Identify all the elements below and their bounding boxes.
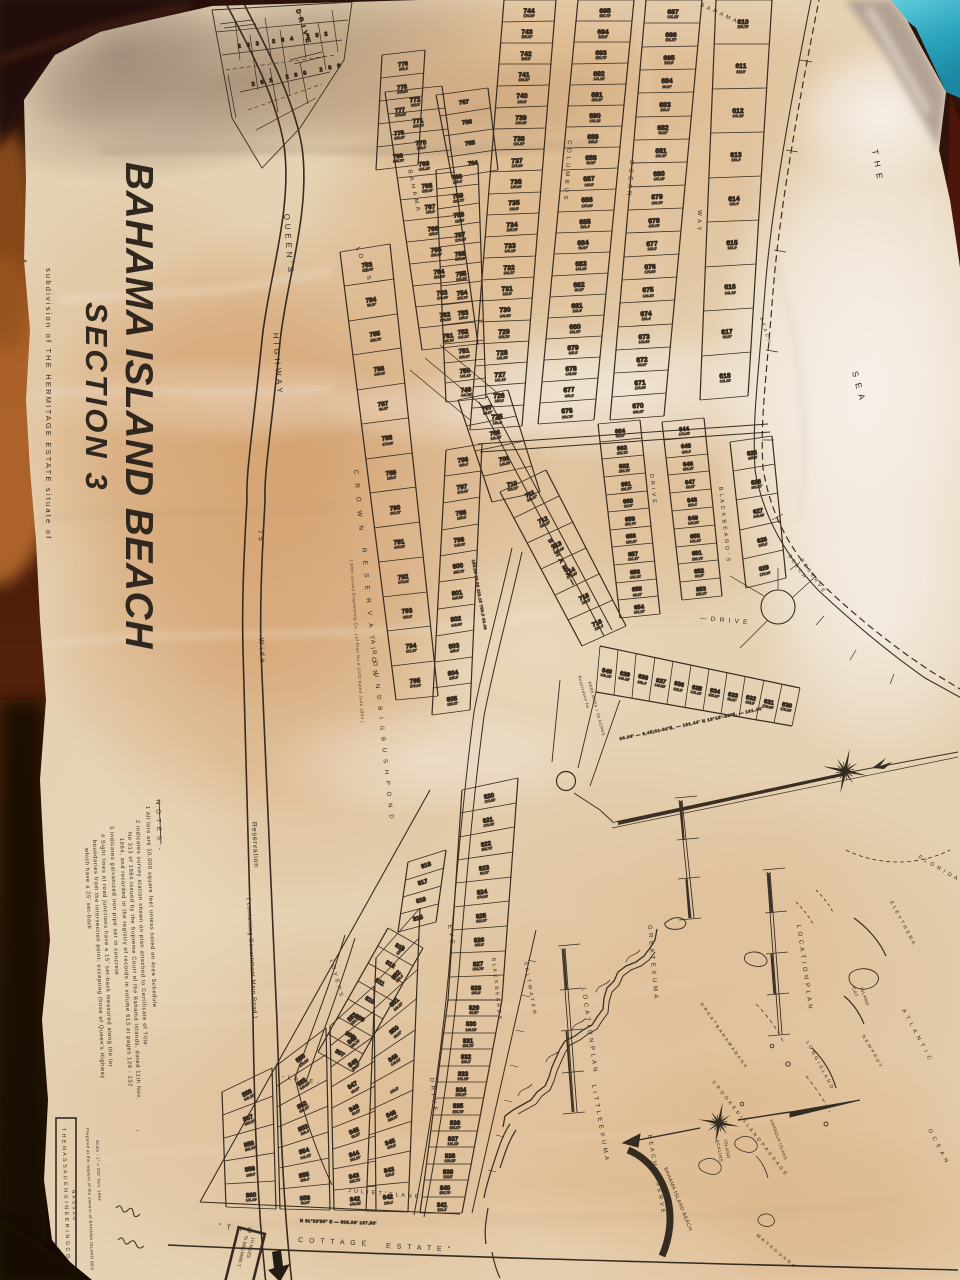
svg-text:95.07': 95.07' bbox=[663, 85, 673, 89]
svg-text:158.70': 158.70' bbox=[473, 967, 485, 972]
svg-text:141.18': 141.18' bbox=[733, 114, 744, 118]
svg-text:155.67': 155.67' bbox=[592, 98, 603, 102]
svg-text:122.5': 122.5' bbox=[598, 35, 607, 39]
svg-text:170.06': 170.06' bbox=[645, 270, 657, 275]
svg-text:7 5 ': 7 5 ' bbox=[256, 530, 264, 546]
svg-text:149.33': 149.33' bbox=[444, 1159, 455, 1163]
svg-text:149.33': 149.33' bbox=[465, 1028, 476, 1032]
svg-text:158.70': 158.70' bbox=[452, 1110, 463, 1114]
svg-text:133.4': 133.4' bbox=[461, 1060, 470, 1064]
svg-text:141.18': 141.18' bbox=[720, 379, 732, 384]
svg-text:141.18': 141.18' bbox=[497, 356, 509, 361]
svg-text:141.18': 141.18' bbox=[495, 378, 507, 383]
svg-text:133.4': 133.4' bbox=[642, 317, 652, 321]
svg-text:101.57': 101.57' bbox=[504, 271, 516, 276]
svg-text:830: 830 bbox=[466, 1021, 477, 1028]
svg-text:155.67': 155.67' bbox=[455, 1093, 466, 1097]
svg-text:101.57': 101.57' bbox=[656, 154, 667, 158]
svg-text:155.67': 155.67' bbox=[449, 1126, 460, 1130]
svg-text:158.70': 158.70' bbox=[595, 56, 606, 60]
svg-text:141.18': 141.18' bbox=[505, 249, 517, 253]
svg-text:170.06': 170.06' bbox=[523, 14, 534, 18]
svg-text:141.18': 141.18' bbox=[594, 77, 605, 81]
svg-text:122.5': 122.5' bbox=[518, 100, 528, 104]
svg-text:149.33': 149.33' bbox=[516, 121, 527, 125]
svg-text:165.8': 165.8' bbox=[569, 351, 579, 355]
svg-text:165.8': 165.8' bbox=[521, 57, 530, 61]
svg-text:158.70': 158.70' bbox=[562, 415, 574, 420]
svg-text:149.33': 149.33' bbox=[511, 185, 523, 189]
svg-text:122.5': 122.5' bbox=[648, 247, 658, 251]
svg-text:122.5': 122.5' bbox=[443, 1175, 452, 1179]
svg-text:165.8': 165.8' bbox=[495, 399, 505, 404]
svg-text:SECTION 3: SECTION 3 bbox=[79, 302, 114, 493]
svg-text:141.18': 141.18' bbox=[447, 1142, 458, 1146]
svg-text:95.07': 95.07' bbox=[301, 1201, 311, 1206]
svg-text:122.5': 122.5' bbox=[664, 61, 673, 65]
svg-text:133.4': 133.4' bbox=[731, 158, 741, 162]
svg-text:158.70': 158.70' bbox=[652, 201, 664, 205]
svg-text:133.4': 133.4' bbox=[661, 108, 671, 112]
svg-text:133.4': 133.4' bbox=[730, 202, 740, 206]
svg-text:141.18': 141.18' bbox=[576, 267, 588, 271]
svg-text:95.07': 95.07' bbox=[586, 161, 596, 165]
svg-text:170.06': 170.06' bbox=[582, 204, 594, 208]
svg-text:95.07': 95.07' bbox=[658, 131, 668, 135]
svg-text:95.07': 95.07' bbox=[638, 363, 648, 368]
svg-text:101.57': 101.57' bbox=[514, 142, 525, 146]
svg-text:95.07': 95.07' bbox=[575, 288, 585, 292]
svg-text:158.70': 158.70' bbox=[599, 14, 610, 18]
svg-text:122.5': 122.5' bbox=[510, 207, 520, 211]
svg-text:l: l bbox=[135, 1130, 140, 1131]
svg-text:165.8': 165.8' bbox=[471, 991, 481, 995]
svg-text:149.33': 149.33' bbox=[566, 372, 578, 377]
svg-text:165.8': 165.8' bbox=[588, 140, 598, 144]
svg-text:141.18': 141.18' bbox=[667, 15, 678, 19]
svg-text:141.18': 141.18' bbox=[725, 291, 737, 296]
svg-text:W A Y: W A Y bbox=[695, 210, 702, 231]
svg-text:101.57': 101.57' bbox=[665, 38, 676, 42]
svg-text:835: 835 bbox=[453, 1103, 464, 1110]
svg-text:subdivision of THE HERMITAG: subdivision of THE HERMITAGE ESTATE situ… bbox=[44, 268, 53, 540]
svg-text:155.67': 155.67' bbox=[519, 78, 530, 82]
svg-text:122.5': 122.5' bbox=[503, 292, 513, 296]
svg-text:158.70': 158.70' bbox=[737, 25, 748, 29]
svg-text:122.5': 122.5' bbox=[736, 70, 745, 74]
svg-text:158.70': 158.70' bbox=[439, 1191, 450, 1195]
svg-text:95.07': 95.07' bbox=[579, 246, 589, 250]
svg-text:141.18': 141.18' bbox=[590, 119, 601, 123]
svg-text:BAHAMA ISLAND BEACH: BAHAMA ISLAND BEACH bbox=[117, 162, 160, 649]
svg-text:122.5': 122.5' bbox=[585, 183, 595, 187]
svg-text:165.8': 165.8' bbox=[475, 943, 485, 948]
svg-text:149.33': 149.33' bbox=[643, 294, 655, 299]
svg-text:158.70': 158.70' bbox=[649, 224, 661, 228]
svg-text:133.4': 133.4' bbox=[728, 246, 738, 250]
svg-text:133.4': 133.4' bbox=[682, 450, 692, 455]
svg-text:165.8': 165.8' bbox=[565, 394, 575, 399]
svg-text:158.70': 158.70' bbox=[507, 228, 519, 232]
svg-text:133.4': 133.4' bbox=[437, 1208, 446, 1212]
svg-text:141.18': 141.18' bbox=[457, 1077, 468, 1081]
svg-text:155.67': 155.67' bbox=[521, 35, 532, 39]
svg-text:149.33': 149.33' bbox=[500, 314, 512, 319]
svg-text:95.07': 95.07' bbox=[469, 1011, 478, 1015]
svg-text:95.07': 95.07' bbox=[723, 335, 733, 340]
svg-text:155.67': 155.67' bbox=[633, 410, 645, 415]
svg-text:101.57': 101.57' bbox=[570, 330, 582, 335]
svg-text:170.06': 170.06' bbox=[635, 386, 647, 391]
svg-text:141.18': 141.18' bbox=[654, 177, 666, 181]
svg-text:158.70': 158.70' bbox=[462, 1044, 473, 1048]
svg-text:158.70': 158.70' bbox=[499, 335, 511, 340]
svg-text:141.18': 141.18' bbox=[246, 1198, 258, 1203]
svg-text:133.4': 133.4' bbox=[581, 225, 591, 229]
svg-text:149.33': 149.33' bbox=[639, 340, 651, 345]
svg-text:133.4': 133.4' bbox=[573, 309, 583, 313]
svg-text:611: 611 bbox=[736, 63, 747, 70]
svg-text:170.06': 170.06' bbox=[512, 164, 524, 168]
